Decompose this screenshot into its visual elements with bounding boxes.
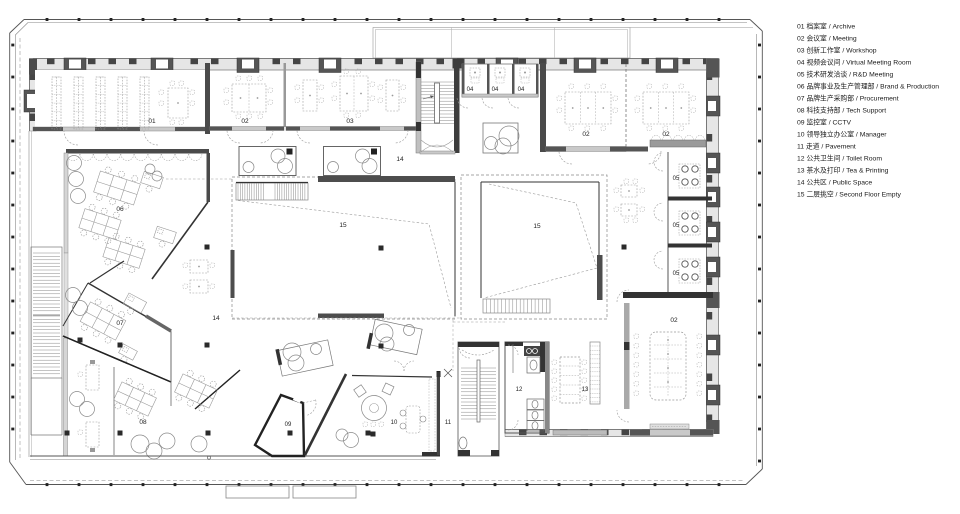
svg-text:15: 15: [339, 222, 347, 229]
svg-text:04: 04: [467, 87, 474, 93]
svg-text:09 监控室 / CCTV: 09 监控室 / CCTV: [797, 118, 851, 127]
svg-text:05: 05: [673, 176, 680, 182]
svg-text:04 视频会议间 / Virtual Meeting Roo: 04 视频会议间 / Virtual Meeting Room: [797, 58, 912, 67]
svg-text:04: 04: [518, 87, 525, 93]
svg-text:02: 02: [582, 131, 590, 138]
svg-text:03 创新工作室 / Workshop: 03 创新工作室 / Workshop: [797, 46, 877, 55]
svg-text:03: 03: [346, 118, 354, 125]
svg-text:15: 15: [533, 223, 541, 230]
svg-text:06: 06: [116, 206, 124, 213]
svg-text:01 档案室 / Archive: 01 档案室 / Archive: [797, 22, 855, 31]
svg-text:01: 01: [148, 118, 156, 125]
svg-text:08 科技支持部 / Tech Support: 08 科技支持部 / Tech Support: [797, 106, 886, 115]
svg-text:14: 14: [212, 315, 220, 322]
svg-text:02 会议室 / Meeting: 02 会议室 / Meeting: [797, 34, 857, 43]
svg-text:08: 08: [139, 419, 147, 426]
svg-text:05: 05: [673, 271, 680, 277]
svg-text:07: 07: [116, 320, 124, 327]
svg-text:13 茶水及打印 / Tea & Printing: 13 茶水及打印 / Tea & Printing: [797, 166, 889, 175]
svg-text:12 公共卫生间 / Toilet Room: 12 公共卫生间 / Toilet Room: [797, 154, 882, 163]
svg-text:13: 13: [582, 387, 589, 393]
svg-text:10: 10: [391, 420, 398, 426]
svg-text:15 二层挑空 / Second Floor Empty: 15 二层挑空 / Second Floor Empty: [797, 190, 901, 199]
svg-text:02: 02: [662, 131, 670, 138]
svg-text:05 技术研发洽谈 / R&D Meeting: 05 技术研发洽谈 / R&D Meeting: [797, 70, 894, 79]
svg-text:12: 12: [516, 387, 523, 393]
svg-text:05: 05: [673, 223, 680, 229]
svg-text:06 品牌事业及生产管理部 / Brand & Produc: 06 品牌事业及生产管理部 / Brand & Production: [797, 82, 939, 91]
svg-text:07 品牌生产采购部 / Procurement: 07 品牌生产采购部 / Procurement: [797, 94, 899, 103]
svg-text:11: 11: [445, 420, 452, 426]
svg-text:04: 04: [492, 87, 499, 93]
svg-text:10 领导独立办公室 / Manager: 10 领导独立办公室 / Manager: [797, 130, 887, 139]
svg-text:02: 02: [670, 317, 678, 324]
svg-text:11 走道 / Pavement: 11 走道 / Pavement: [797, 142, 856, 151]
svg-text:14 公共区 / Public Space: 14 公共区 / Public Space: [797, 178, 872, 187]
svg-text:02: 02: [241, 118, 249, 125]
svg-text:09: 09: [285, 422, 292, 428]
svg-text:14: 14: [396, 156, 404, 163]
